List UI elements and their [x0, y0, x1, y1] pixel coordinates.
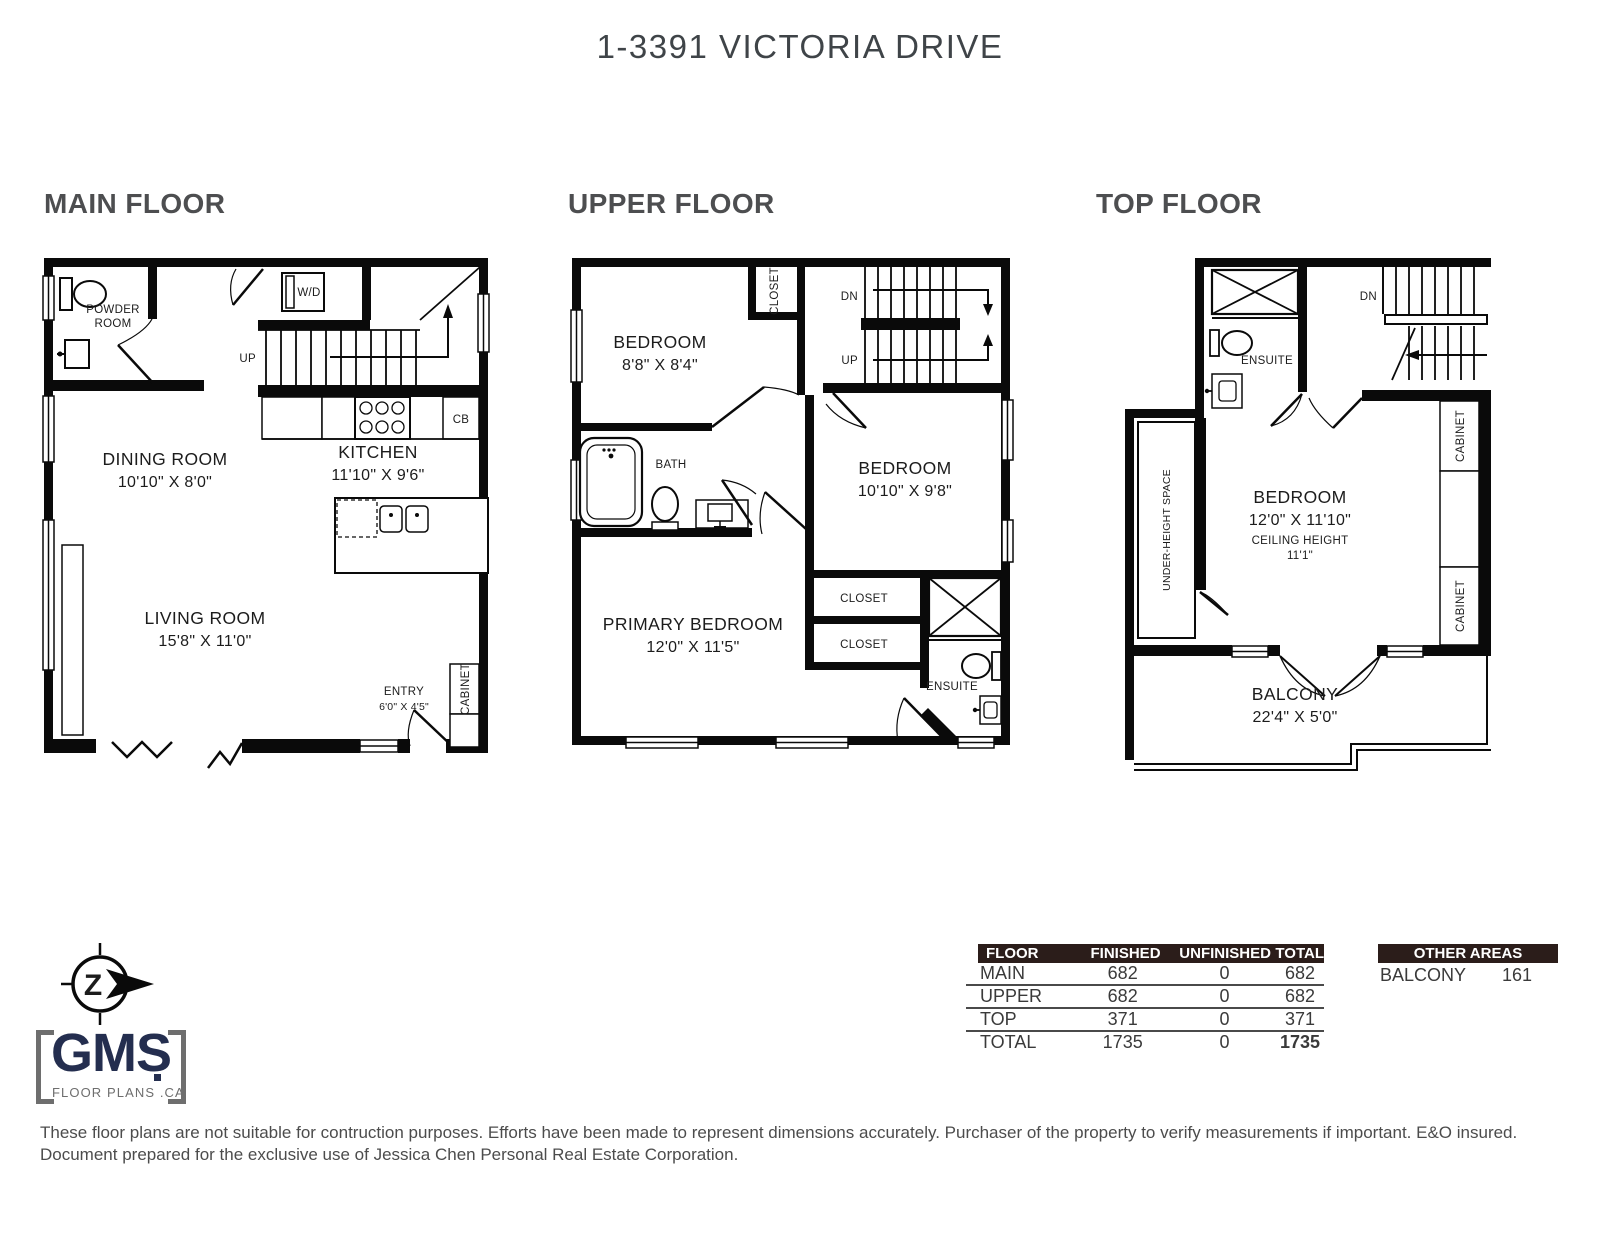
closet2-label: CLOSET	[840, 639, 888, 651]
powder-door-leaf	[118, 345, 153, 383]
col-header-unfinished: UNFINISHED	[1175, 944, 1276, 963]
closet-door-arc	[231, 269, 236, 305]
page-title: 1-3391 VICTORIA DRIVE	[0, 28, 1600, 66]
logo-dot	[154, 1074, 161, 1081]
col-header-finished: FINISHED	[1076, 944, 1175, 963]
ensuite-shower	[929, 578, 1001, 640]
bedroom1-label: BEDROOM	[613, 332, 706, 352]
gms-logo: GMS FLOOR PLANS .CA	[36, 1030, 186, 1104]
laundry-closet: W/D	[231, 269, 324, 311]
bedroom2-label: BEDROOM	[858, 458, 951, 478]
dn-arrow-head	[1405, 350, 1419, 360]
balcony-dims: 22'4" X 5'0"	[1252, 709, 1337, 726]
toilet-tank	[652, 522, 678, 530]
up-arrow-head	[983, 334, 993, 346]
upper-floor-heading: UPPER FLOOR	[568, 188, 775, 220]
top-ensuite: ENSUITE	[1205, 270, 1302, 426]
cabinet1-label: CABINET	[1455, 410, 1467, 462]
ensuite-sink	[1212, 374, 1242, 408]
bedroom-label: BEDROOM	[1253, 487, 1346, 507]
col-header-total: TOTAL	[1275, 944, 1324, 963]
cabinet2-label: CABINET	[1455, 580, 1467, 632]
entry-door-arc	[408, 710, 414, 746]
other-areas-header: OTHER AREAS	[1378, 944, 1558, 963]
entry-dims: 6'0" X 4'5"	[379, 701, 429, 713]
toilet-bowl	[652, 487, 678, 521]
main-floor-plan: POWDER ROOM W/D UP CB	[40, 252, 492, 776]
toilet-bowl	[962, 654, 990, 678]
bedroom2-dims: 10'10" X 9'8"	[858, 483, 952, 500]
bathtub	[580, 438, 642, 526]
bedroom-entry-door	[1309, 398, 1362, 428]
top-floor-plan: UNDER-HEIGHT SPACE ENSUITE	[1095, 252, 1497, 782]
living-room-dims: 15'8" X 11'0"	[158, 633, 251, 650]
compass-north-icon: Z	[60, 938, 160, 1030]
ceiling-height-value: 11'1"	[1287, 550, 1313, 562]
kitchen-island	[335, 498, 488, 573]
ceiling-height-label: CEILING HEIGHT	[1252, 535, 1349, 547]
ensuite-shower	[1212, 270, 1298, 318]
up-label: UP	[841, 355, 858, 367]
table-header-row: FLOOR FINISHED UNFINISHED TOTAL	[978, 944, 1324, 963]
stair-handrail	[1385, 315, 1487, 324]
balcony-label: BALCONY	[1252, 684, 1338, 704]
ensuite-sink	[980, 696, 1001, 724]
washer-dryer-label: W/D	[297, 287, 320, 299]
disclaimer: These floor plans are not suitable for c…	[40, 1122, 1570, 1166]
bedroom-dims: 12'0" X 11'10"	[1249, 512, 1351, 529]
sink-basin	[406, 506, 428, 532]
powder-room-label: POWDER	[86, 304, 140, 316]
powder-sink	[65, 340, 89, 368]
up-label: UP	[239, 353, 256, 365]
bedroom1-door	[712, 387, 799, 427]
main-floor-heading: MAIN FLOOR	[44, 188, 225, 220]
primary-bedroom-door	[760, 492, 806, 534]
toilet-tank	[60, 278, 72, 310]
other-areas-table: OTHER AREAS BALCONY 161	[1378, 944, 1558, 985]
disclaimer-line1: These floor plans are not suitable for c…	[40, 1122, 1570, 1144]
upper-floor-plan: CLOSET DN UP BATH	[568, 252, 1014, 752]
floor-area-table: FLOOR FINISHED UNFINISHED TOTAL MAIN 682…	[966, 944, 1324, 1053]
entry-label: ENTRY	[384, 686, 424, 698]
table-row: MAIN 682 0 682	[966, 963, 1324, 986]
primary-bedroom-dims: 12'0" X 11'5"	[646, 639, 739, 656]
under-height-label: UNDER-HEIGHT SPACE	[1161, 469, 1173, 591]
dn-label: DN	[1360, 291, 1377, 303]
dn-arrow-head	[983, 304, 993, 316]
top-stairs	[1383, 267, 1487, 380]
top-floor-heading: TOP FLOOR	[1096, 188, 1262, 220]
disclaimer-line2: Document prepared for the exclusive use …	[40, 1144, 1570, 1166]
toilet-tank	[1210, 330, 1219, 356]
primary-bedroom-label: PRIMARY BEDROOM	[603, 614, 783, 634]
closet1-label: CLOSET	[840, 593, 888, 605]
kitchen-dims: 11'10" X 9'6"	[331, 467, 424, 484]
ensuite-label: ENSUITE	[1241, 355, 1293, 367]
toilet-tank	[992, 652, 1001, 680]
closet-label: CLOSET	[769, 267, 781, 315]
table-row: UPPER 682 0 682	[966, 986, 1324, 1009]
bedroom1-dims: 8'8" X 8'4"	[622, 357, 698, 374]
ensuite-door	[1271, 394, 1302, 426]
bedroom-side-door	[1200, 592, 1228, 615]
entry-door-leaf	[414, 710, 452, 746]
dn-label: DN	[841, 291, 858, 303]
bath-label: BATH	[655, 459, 686, 471]
compass-letter: Z	[84, 969, 102, 1002]
up-arrow-head	[443, 304, 453, 318]
entry-door	[408, 710, 452, 746]
table-total-row: TOTAL 1735 0 1735	[966, 1032, 1324, 1053]
logo-subtitle: FLOOR PLANS .CA	[52, 1085, 185, 1100]
dining-room-label: DINING ROOM	[103, 449, 228, 469]
powder-room: POWDER ROOM	[57, 278, 153, 383]
ensuite-label: ENSUITE	[926, 681, 978, 693]
open-edge-zigzag	[112, 742, 242, 768]
logo-name: GMS	[51, 1022, 171, 1084]
under-height-space: UNDER-HEIGHT SPACE	[1138, 422, 1195, 638]
dining-room-dims: 10'10" X 8'0"	[118, 474, 212, 491]
col-header-floor: FLOOR	[978, 944, 1076, 963]
table-row: TOP 371 0 371	[966, 1009, 1324, 1032]
north-arrow	[106, 969, 154, 999]
balcony-wall-windows	[1232, 646, 1423, 657]
sink-basin	[380, 506, 402, 532]
bathroom: BATH	[580, 438, 756, 530]
table-row: BALCONY 161	[1378, 963, 1558, 985]
dishwasher	[337, 500, 377, 537]
cb-label: CB	[453, 414, 470, 426]
living-room-window-ledge	[62, 545, 83, 735]
living-room-label: LIVING ROOM	[144, 608, 265, 628]
kitchen-label: KITCHEN	[338, 442, 418, 462]
cabinet-label: CABINET	[460, 663, 472, 715]
toilet-bowl	[1222, 331, 1252, 355]
stove	[355, 397, 410, 439]
bedroom2-door	[826, 393, 866, 428]
powder-room-label2: ROOM	[95, 318, 132, 330]
closet-door-leaf	[233, 269, 263, 305]
